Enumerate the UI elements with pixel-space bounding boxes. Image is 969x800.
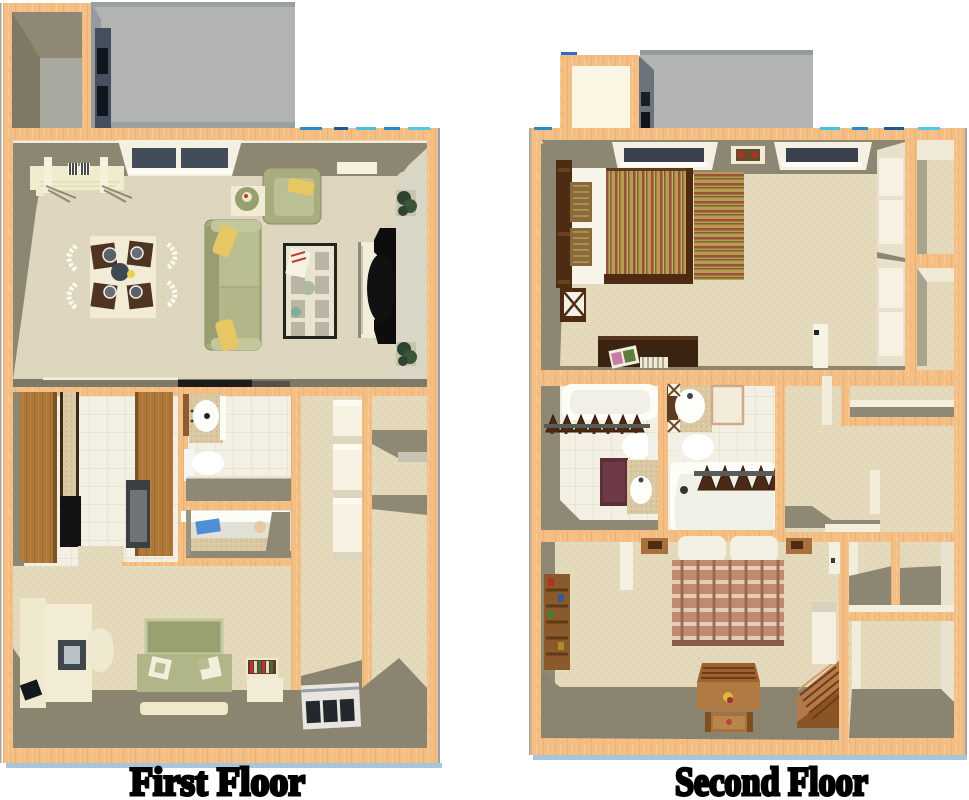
svg-text:First Floor: First Floor — [130, 759, 305, 800]
svg-text:Second Floor: Second Floor — [675, 759, 868, 800]
